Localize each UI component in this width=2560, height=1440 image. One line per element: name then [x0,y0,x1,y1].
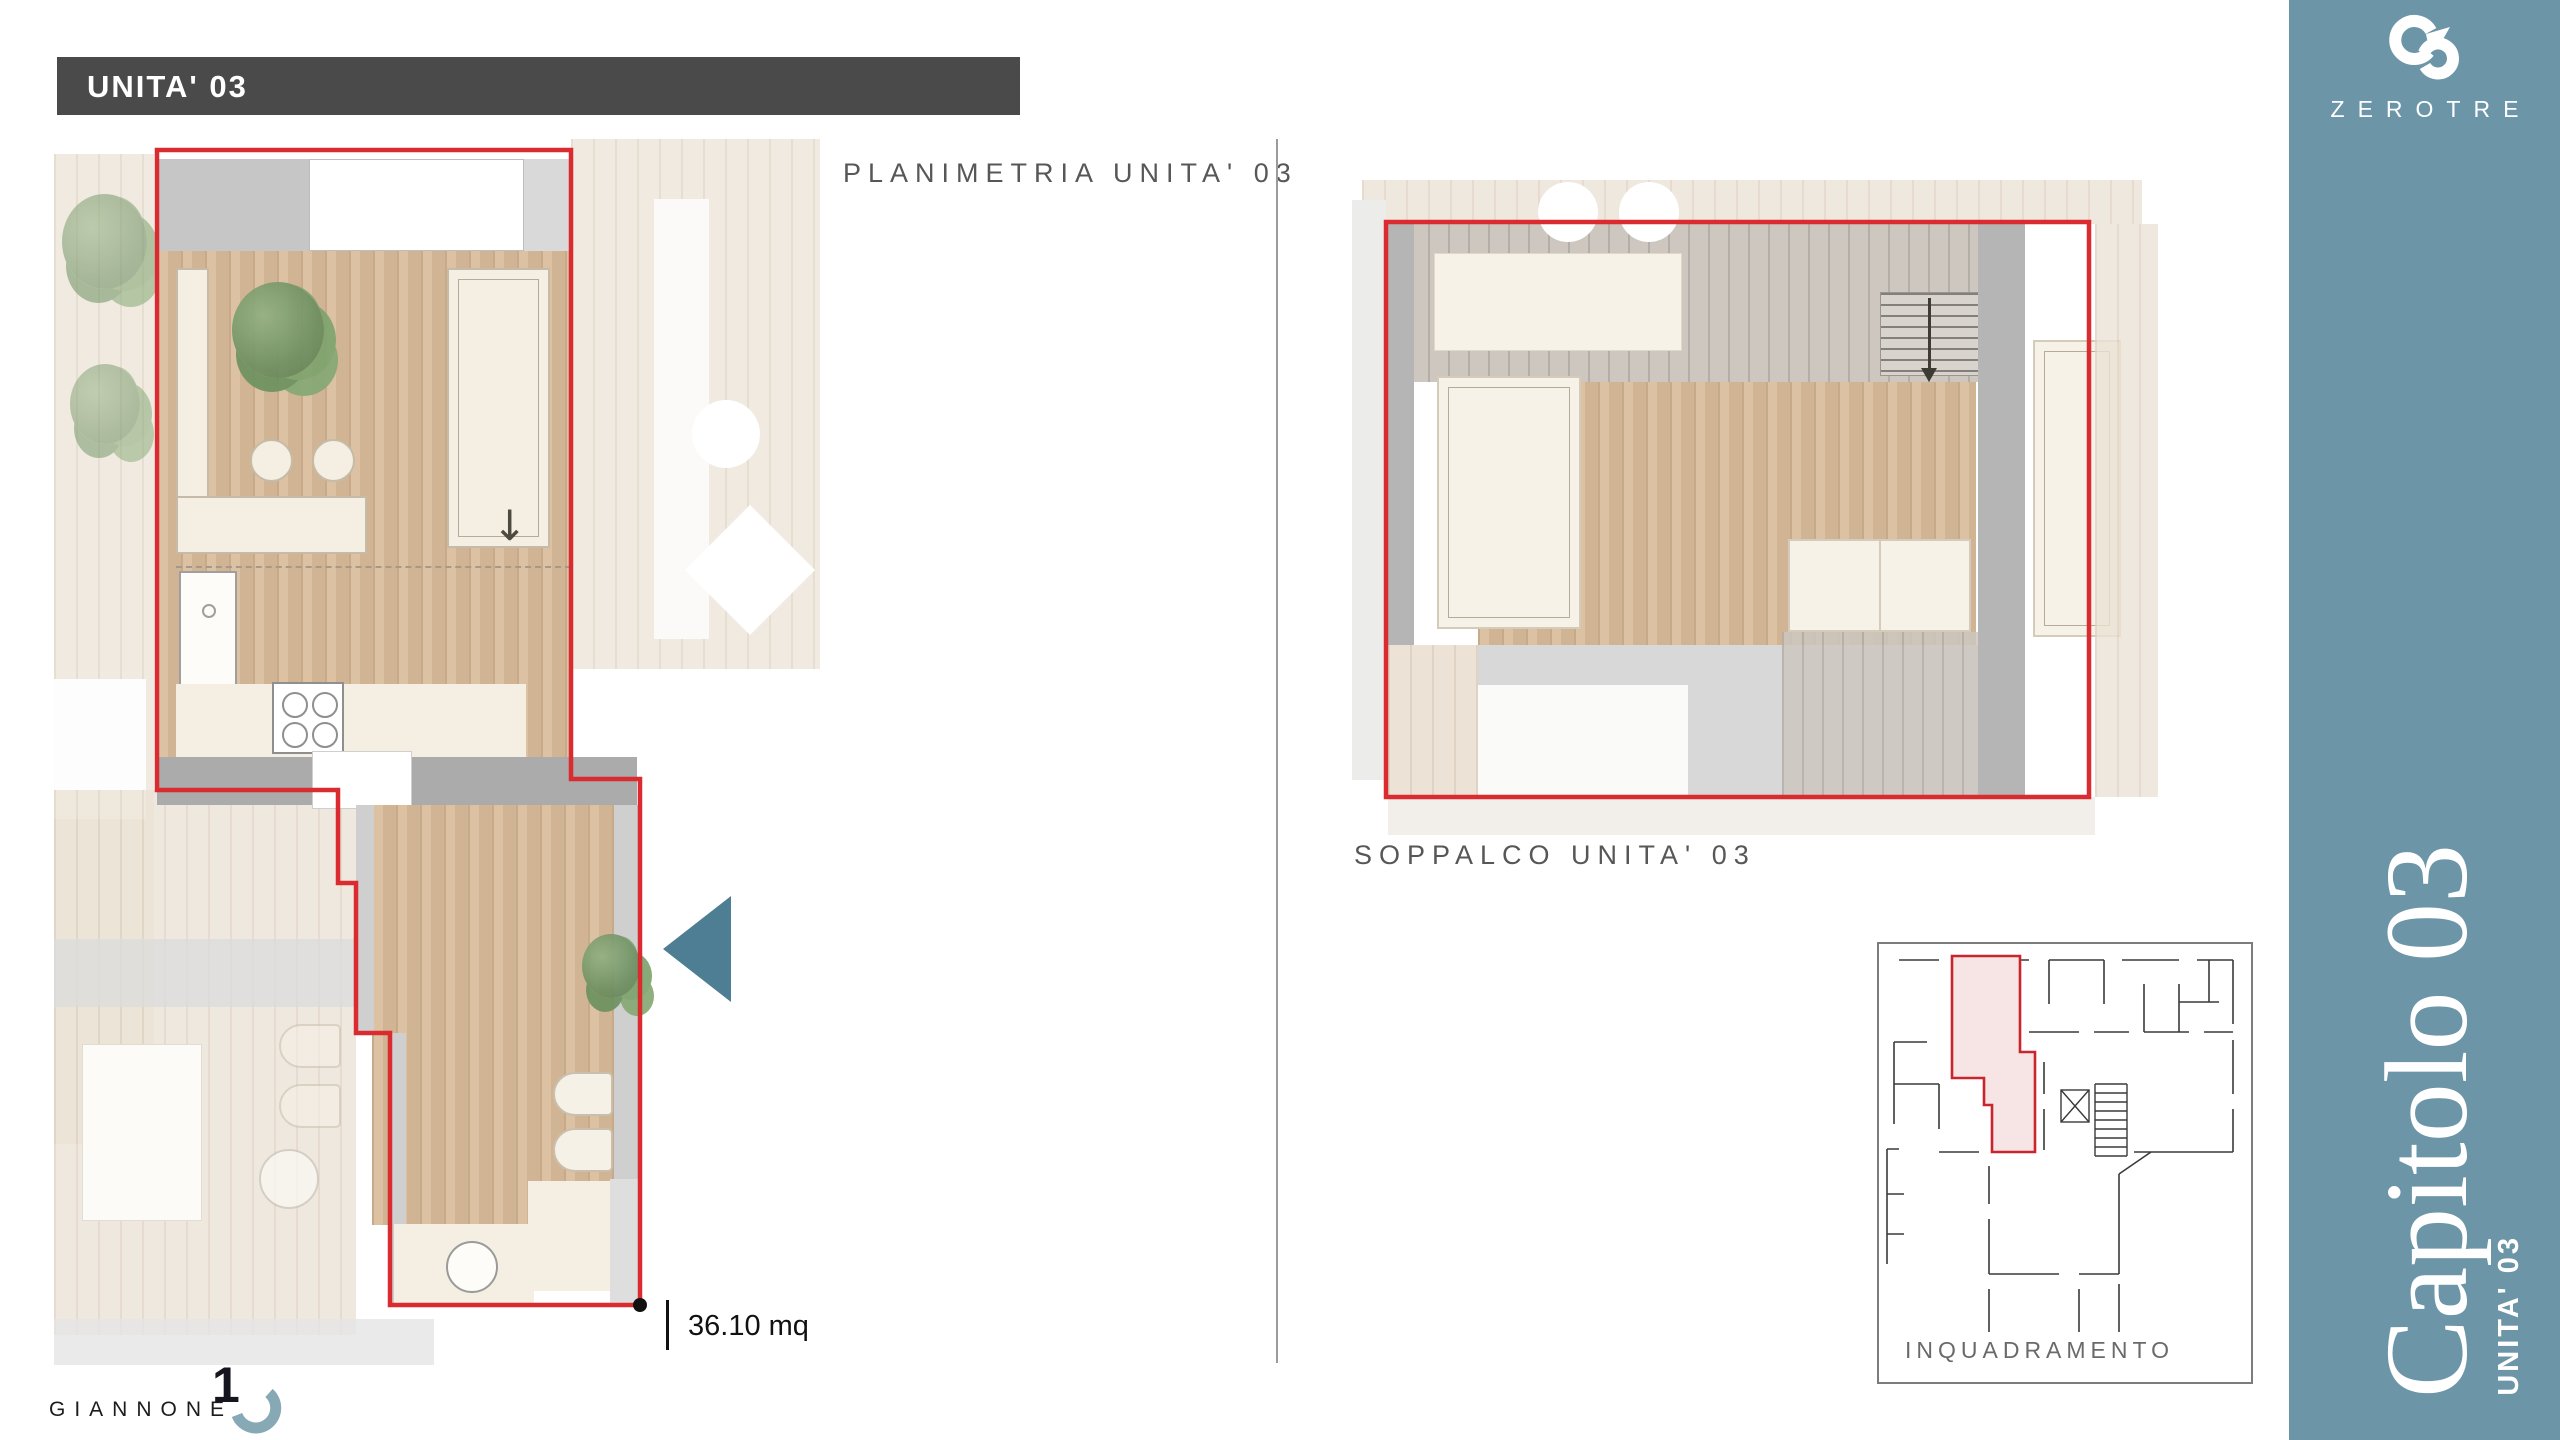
brand-name: ZEROTRE [2289,96,2560,123]
chapter-unit: UNITA' 03 [2493,1235,2526,1396]
column-circle [1619,182,1679,242]
neighbor-band-bottom [1388,797,2095,835]
stove-burner-icon [312,722,338,748]
neighbor-fixture [279,1084,341,1128]
column-circle [1538,182,1598,242]
room-divider-dashed [176,566,571,568]
unit-title-bar: UNITA' 03 [57,57,1020,115]
kitchen-counter [176,684,526,757]
neighbor-band-bottom [54,1319,434,1365]
soppalco-wall-right [1978,224,2025,797]
area-value: 36.10 mq [688,1310,809,1343]
stairs-down-arrow-icon [1928,298,1931,370]
zerotre-03-monogram-icon [2382,14,2468,80]
inquadramento-box: INQUADRAMENTO [1877,942,2253,1384]
neighbor-round-table [692,400,760,468]
round-table [446,1241,498,1293]
toilet [553,1072,613,1116]
stairs-down-arrow-icon: ↓ [492,501,527,550]
door-gap [312,751,412,809]
inquadramento-label: INQUADRAMENTO [1905,1337,2174,1364]
neighbor-fixture [279,1024,341,1068]
neighbor-corridor [54,939,356,1007]
plant-icon [62,194,147,289]
kitchen-peninsula [176,496,367,554]
stool [312,439,355,482]
soppalco-plan [1352,180,2158,835]
measure-tick [666,1300,669,1350]
soppalco-counter [1434,253,1682,351]
window-band [309,159,524,251]
plant-icon [232,282,324,378]
void-wood-left [1388,645,1478,797]
stove-burner-icon [282,692,308,718]
planimetria-plan: ↓ [54,139,820,1365]
stove-burner-icon [312,692,338,718]
soppalco-label: SOPPALCO UNITA' 03 [1354,840,1756,871]
soppalco-bed [1437,376,1581,629]
bath-wall [614,805,640,1225]
neighbor-floor-top [1362,180,2142,224]
stool [250,439,293,482]
void-wood-right [1782,632,1978,797]
section-divider [1276,139,1278,1363]
void-white [1478,685,1688,797]
shower [610,1179,640,1305]
bidet [553,1128,613,1172]
giannone-arc-icon [228,1380,286,1438]
planimetria-label: PLANIMETRIA UNITA' 03 [843,158,1298,189]
balcony-wall-left [157,159,309,251]
studio-name: GIANNONE [49,1398,233,1422]
unit-title: UNITA' 03 [57,57,1020,105]
neighbor-table [259,1149,319,1209]
stairs-arrowhead-icon [1921,368,1937,382]
plant-icon [582,934,640,998]
sidebar: ZEROTRE Capitolo 03 UNITA' 03 [2289,0,2560,1440]
neighbor-floor-right [2095,224,2158,797]
inquadramento-plan [1879,944,2250,1334]
neighbor-strip-left [1352,200,1386,780]
plant-icon [70,364,140,444]
corridor-wall [356,805,374,1033]
bath-cabinet [528,1181,614,1291]
chapter-title: Capitolo 03 [2368,844,2486,1398]
stove-burner-icon [282,722,308,748]
entrance-arrow-icon [663,896,731,1002]
cabinet-knob [202,604,216,618]
balcony-wall-right [524,159,571,251]
neighbor-bed [82,1044,202,1221]
kitchen-stove [272,682,344,754]
cabinet-divider [1879,541,1881,630]
